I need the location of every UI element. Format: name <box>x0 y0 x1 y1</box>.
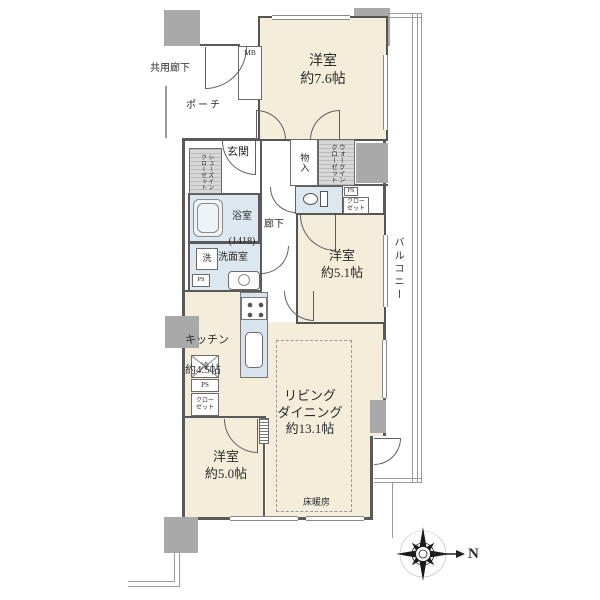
window <box>272 15 350 20</box>
bathtub-inner <box>197 203 219 233</box>
ps-left-label: PS <box>191 379 219 392</box>
structural-wall <box>356 143 388 183</box>
common-corridor-label: 共用廊下 <box>150 63 220 76</box>
ps-right-label: PS <box>344 187 358 196</box>
balcony-label: バルコニー <box>391 237 403 327</box>
toilet-door-arc <box>270 187 296 213</box>
closet-right-label: クロー ゼット <box>343 197 369 214</box>
west51-label: 洋室 約5.1帖 <box>300 246 384 284</box>
wall-segment <box>184 416 266 418</box>
boundary-line <box>128 581 175 582</box>
bathroom-size: (1418) <box>229 236 256 247</box>
bathroom-name: 浴室 <box>232 211 252 222</box>
pillar <box>164 517 198 553</box>
boundary-line <box>174 553 175 582</box>
walk-in-closet-label: ウォークイン クローゼット <box>318 140 355 186</box>
balcony-rail <box>388 17 422 18</box>
window <box>230 516 298 521</box>
boundary-line <box>128 586 180 587</box>
storage-label: 物入 <box>290 140 318 185</box>
wall-segment <box>370 436 373 520</box>
kitchen-name: キッチン <box>185 334 229 346</box>
floor-plan: 共用廊下 ポーチ MB 洋室 約7.6帖 玄関 シューズイン クローゼット 物入… <box>0 0 600 600</box>
ps-washroom-label: PS <box>192 274 210 287</box>
window <box>306 516 364 521</box>
balcony-rail <box>412 13 413 483</box>
porch-label: ポーチ <box>186 100 236 113</box>
living-dining-size: 約13.1帖 <box>286 421 335 438</box>
floor-heating-label: 床暖房 <box>303 497 349 509</box>
corridor-door-arc <box>284 291 314 321</box>
balcony-rail <box>374 478 422 479</box>
washroom-label: 洗面室 <box>218 252 262 265</box>
porch-boundary <box>165 86 167 138</box>
shoes-closet-label: シューズイン クローゼット <box>189 149 222 194</box>
pillar <box>164 10 200 46</box>
closet-left-label: クロー ゼット <box>191 393 219 416</box>
bathroom-label: 浴室 (1418) <box>222 198 262 249</box>
bath-door-arc <box>261 246 289 274</box>
west76-size: 約7.6帖 <box>300 71 346 89</box>
balcony-rail <box>421 13 422 483</box>
vanity-sink <box>238 274 250 286</box>
kitchen-sink <box>245 332 263 368</box>
west50-label: 洋室 約5.0帖 <box>190 447 262 485</box>
west51-size: 約5.1帖 <box>321 265 363 282</box>
balcony-rail <box>417 13 418 483</box>
corridor-label: 廊下 <box>264 219 294 232</box>
west76-label: 洋室 約7.6帖 <box>261 45 385 97</box>
balcony-door-arc <box>374 438 401 465</box>
west76-name: 洋室 <box>309 53 337 71</box>
stove <box>241 297 267 320</box>
west51-name: 洋室 <box>329 248 355 265</box>
refrigerator-label: 冷 <box>191 355 219 378</box>
laundry-label: 洗 <box>196 248 218 270</box>
compass-north-label: N <box>468 545 479 564</box>
living-dining-name: リビング ダイニング <box>277 388 342 421</box>
boundary-line <box>179 553 180 586</box>
meter-box-label: MB <box>238 48 262 58</box>
entrance-label: 玄関 <box>227 145 267 159</box>
west50-name: 洋室 <box>213 449 239 466</box>
west50-size: 約5.0帖 <box>205 466 247 483</box>
balcony-rail <box>374 482 422 483</box>
living-dining-label: リビング ダイニング 約13.1帖 <box>268 385 352 441</box>
window <box>382 340 387 398</box>
toilet-tank <box>320 191 328 207</box>
balcony-rail <box>388 13 422 14</box>
toilet-bowl <box>303 193 318 205</box>
pillar <box>370 400 386 433</box>
